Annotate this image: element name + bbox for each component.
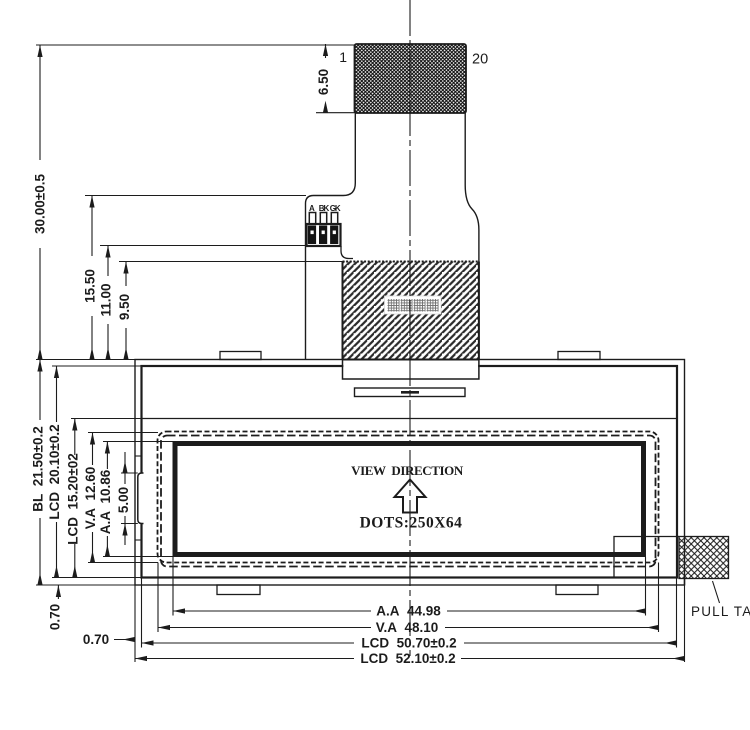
svg-text:A.A 10.86: A.A 10.86 — [98, 469, 113, 534]
svg-text:6.50: 6.50 — [316, 69, 331, 95]
svg-text:1: 1 — [339, 49, 347, 65]
svg-text:GK: GK — [330, 204, 341, 213]
svg-text:DOTS:250X64: DOTS:250X64 — [360, 515, 463, 532]
svg-text:11.00: 11.00 — [99, 283, 114, 316]
svg-text:PULL TAB: PULL TAB — [691, 604, 750, 619]
svg-text:0.70: 0.70 — [48, 604, 63, 630]
svg-text:30.00±0.5: 30.00±0.5 — [33, 174, 48, 234]
svg-text:LCD 50.70±0.2: LCD 50.70±0.2 — [361, 636, 456, 651]
svg-text:A.A 44.98: A.A 44.98 — [376, 604, 441, 619]
svg-text:15.50: 15.50 — [83, 269, 98, 303]
svg-text:5.00: 5.00 — [116, 487, 131, 513]
svg-text:A: A — [309, 204, 315, 213]
svg-text:LCD 20.10±0.2: LCD 20.10±0.2 — [47, 424, 62, 519]
svg-text:V.A 48.10: V.A 48.10 — [376, 620, 439, 635]
svg-text:20: 20 — [472, 52, 488, 68]
svg-text:LCD 15.20±02: LCD 15.20±02 — [65, 453, 80, 544]
svg-text:V.A 12.60: V.A 12.60 — [83, 467, 98, 530]
svg-text:VIEW DIRECTION: VIEW DIRECTION — [351, 463, 464, 478]
svg-text:9.50: 9.50 — [117, 294, 132, 320]
svg-text:BK: BK — [319, 204, 330, 213]
svg-text:BL 21.50±0.2: BL 21.50±0.2 — [31, 426, 46, 511]
svg-text:0.70: 0.70 — [83, 632, 109, 647]
svg-text:LCD 52.10±0.2: LCD 52.10±0.2 — [360, 651, 455, 666]
